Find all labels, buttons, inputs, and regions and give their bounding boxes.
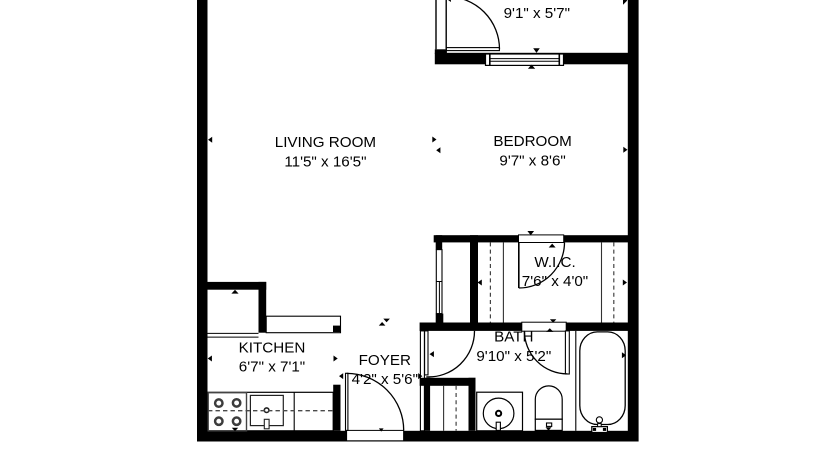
svg-text:6'7" x 7'1": 6'7" x 7'1" <box>239 359 305 376</box>
svg-text:W.I.C.: W.I.C. <box>534 254 575 271</box>
svg-text:BEDROOM: BEDROOM <box>493 133 571 150</box>
svg-text:4'2" x 5'6": 4'2" x 5'6" <box>352 371 418 388</box>
svg-text:9'7" x 8'6": 9'7" x 8'6" <box>499 152 565 169</box>
svg-text:KITCHEN: KITCHEN <box>239 340 306 357</box>
svg-text:7'6" x 4'0": 7'6" x 4'0" <box>522 273 588 290</box>
svg-text:9'1" x 5'7": 9'1" x 5'7" <box>504 5 570 22</box>
svg-text:9'10" x 5'2": 9'10" x 5'2" <box>476 348 551 365</box>
svg-text:BATH: BATH <box>494 329 533 346</box>
svg-text:11'5" x 16'5": 11'5" x 16'5" <box>284 153 366 170</box>
svg-text:FOYER: FOYER <box>359 352 411 369</box>
svg-text:LIVING ROOM: LIVING ROOM <box>275 134 376 151</box>
